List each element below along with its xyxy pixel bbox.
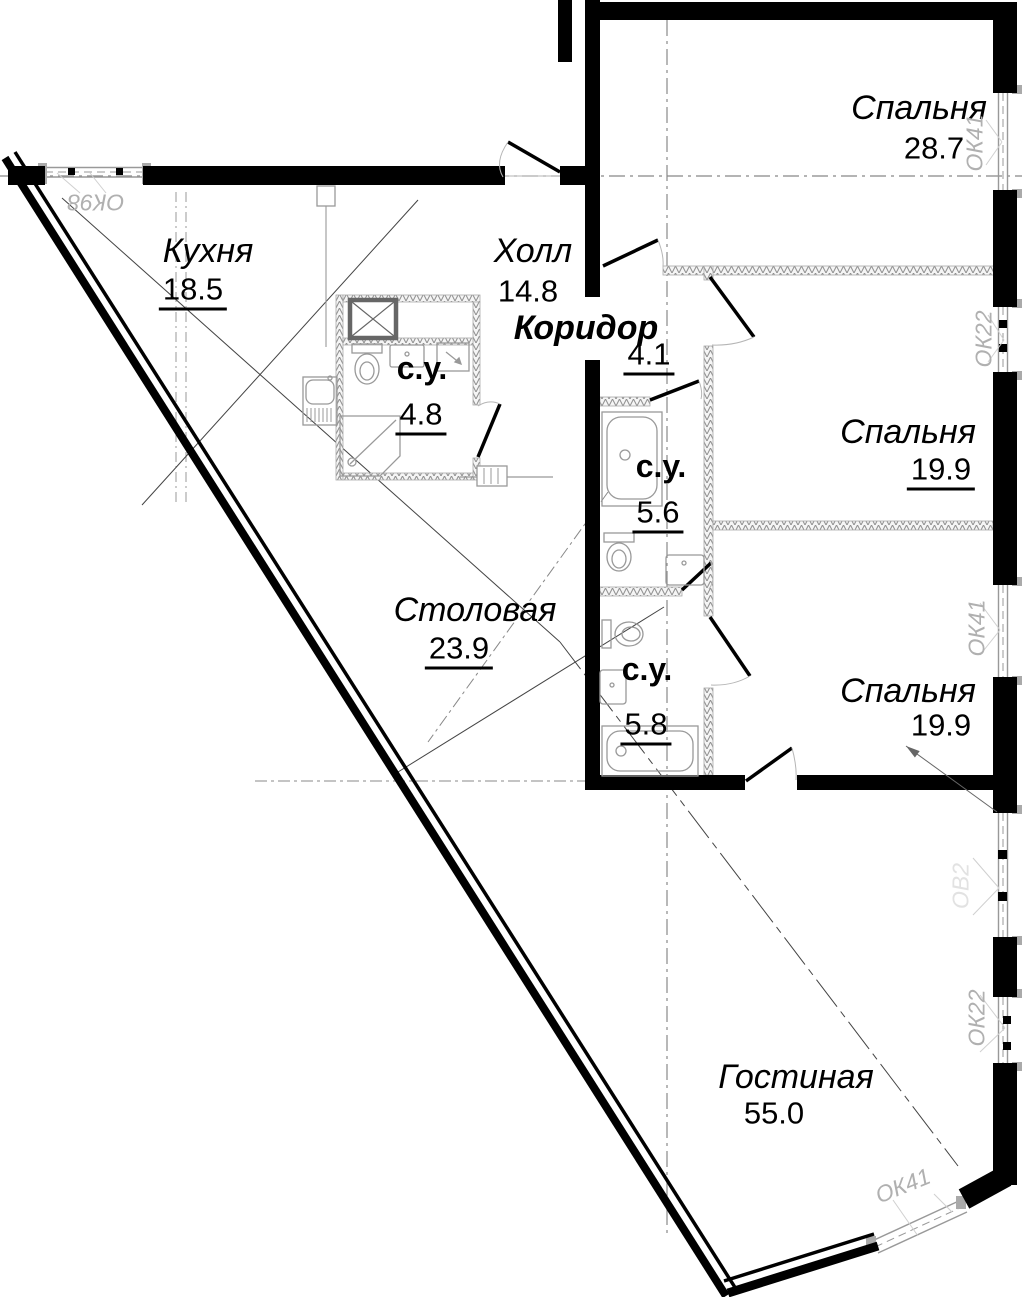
room-area-bedroom-3: 19.9 [911,710,971,741]
room-area-bathroom-1: 4.8 [395,399,446,436]
window-label-ok41-middle: ОК41 [964,599,991,656]
room-area-kitchen: 18.5 [159,274,227,311]
room-label-dining: Столовая [394,593,557,627]
window-label-ov2: ОВ2 [948,863,975,909]
vent-shaft [350,300,396,338]
room-label-hall: Холл [494,234,572,268]
room-area-bedroom-1: 28.7 [904,133,964,164]
window-label-ok22-lower: ОК22 [964,989,991,1046]
room-area-bathroom-2: 5.6 [632,497,683,534]
window-label-ok22-upper: ОК22 [971,310,998,367]
room-label-kitchen: Кухня [163,234,254,268]
floor-plan: Спальня 28.7 Кухня 18.5 Холл 14.8 Коридо… [0,0,1024,1297]
diagonal-walls [5,152,1006,1296]
floor-plan-drawing [0,0,1024,1297]
room-area-living: 55.0 [744,1098,804,1129]
room-label-bedroom-2: Спальня [840,415,976,449]
room-area-bathroom-3: 5.8 [620,709,671,746]
window-label-ok41-top: ОК41 [962,114,989,171]
room-label-bathroom-2: с.у. [636,450,687,482]
room-label-bedroom-3: Спальня [840,674,976,708]
room-label-bathroom-3: с.у. [622,653,673,685]
window-label-ok98: ОК98 [67,189,124,216]
room-area-bedroom-2: 19.9 [907,454,975,491]
room-area-corridor: 4.1 [623,339,674,376]
room-area-hall: 14.8 [498,276,558,307]
room-label-bathroom-1: с.у. [397,352,448,384]
room-area-dining: 23.9 [425,633,493,670]
room-label-living: Гостиная [718,1060,874,1094]
